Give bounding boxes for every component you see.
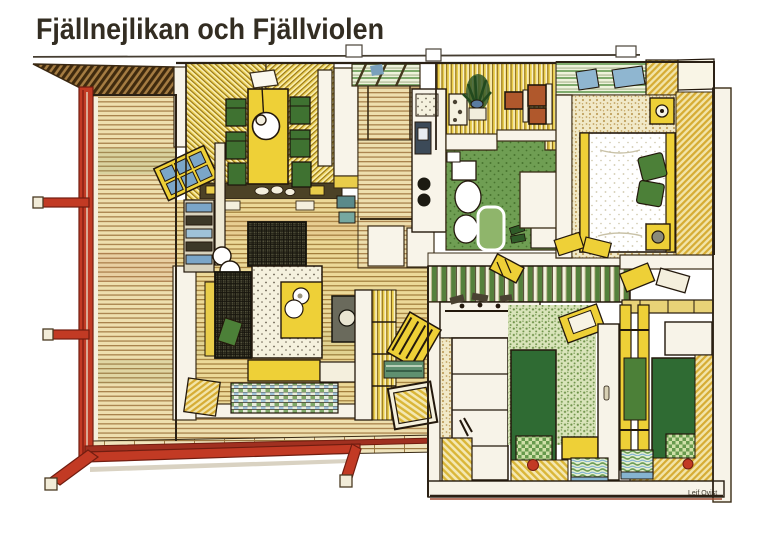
svg-text:Fjällnejlikan och Fjällviolen: Fjällnejlikan och Fjällviolen xyxy=(36,13,384,46)
